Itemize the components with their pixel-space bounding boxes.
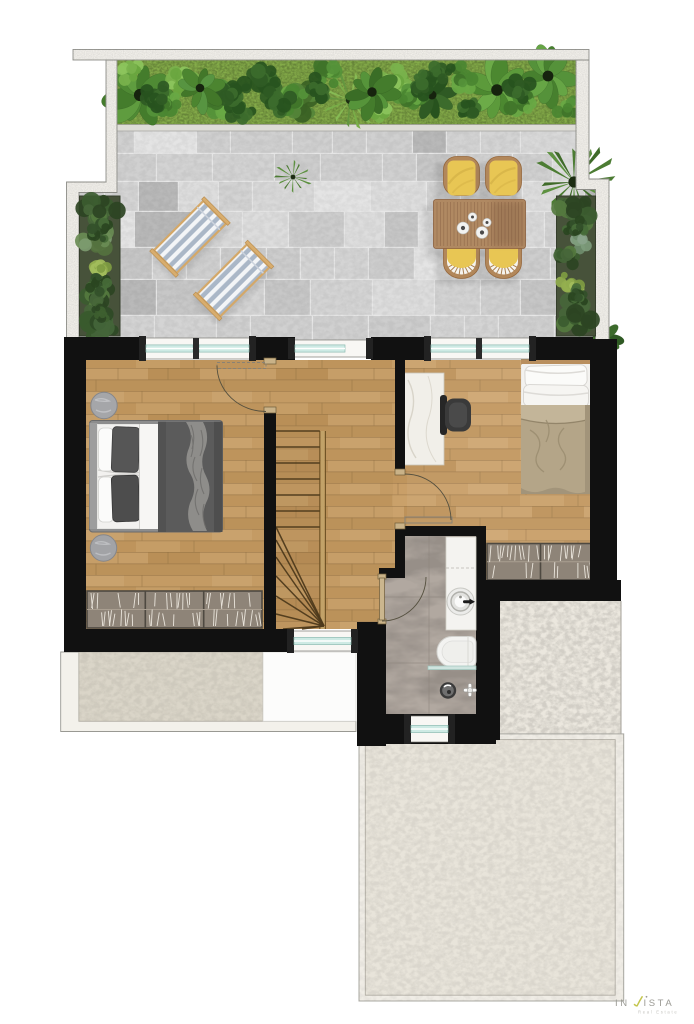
svg-text:IN: IN bbox=[615, 998, 630, 1009]
svg-text:Real Estate: Real Estate bbox=[638, 1010, 678, 1015]
svg-text:ISTA: ISTA bbox=[644, 998, 675, 1009]
